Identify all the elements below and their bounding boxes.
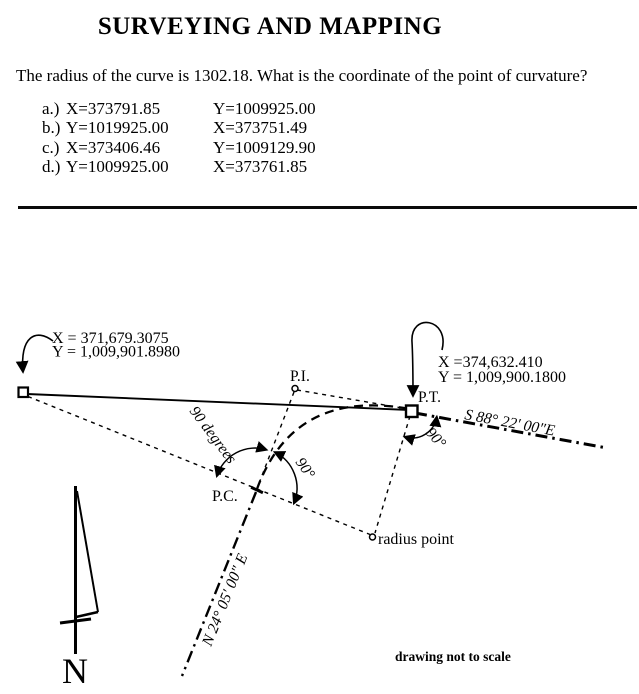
chord-line — [27, 394, 410, 410]
angle-pt-label: 90° — [422, 424, 449, 452]
back-tangent-bearing-line — [182, 492, 256, 676]
point-a-marker — [19, 388, 29, 398]
radius-point-marker — [370, 534, 376, 540]
bearing-forward-label: S 88° 22' 00"E — [463, 406, 556, 439]
curve-arc — [257, 405, 410, 489]
scale-note: drawing not to scale — [395, 649, 511, 664]
angle-arc-pc-right — [275, 452, 297, 504]
worksheet-page: SURVEYING AND MAPPING The radius of the … — [0, 0, 639, 694]
point-pt-y-label: Y = 1,009,900.1800 — [438, 369, 566, 386]
point-pi-marker — [292, 386, 298, 392]
north-arrow-blade-base — [76, 612, 98, 617]
bearing-back-label: N 24° 05' 00" E — [199, 551, 252, 649]
north-label: N — [62, 651, 88, 691]
radius-point-label: radius point — [378, 531, 455, 548]
north-arrow: N — [60, 486, 98, 691]
point-pt-marker — [406, 406, 418, 418]
radial-line-pt-to-radius-point — [375, 416, 410, 533]
point-pi-label: P.I. — [290, 368, 310, 385]
point-a-y-label: Y = 1,009,901.8980 — [52, 344, 180, 361]
survey-diagram: N X = 371,679.3075 Y = 1,009,901.8980 X … — [0, 0, 639, 694]
point-pt-label: P.T. — [418, 389, 441, 406]
point-a-leader-arrow — [23, 335, 53, 372]
north-arrow-crossbar — [60, 619, 91, 623]
point-pc-label: P.C. — [212, 488, 238, 505]
north-arrow-blade — [77, 491, 98, 612]
angle-pc-left-label: 90 degrees — [186, 403, 240, 467]
